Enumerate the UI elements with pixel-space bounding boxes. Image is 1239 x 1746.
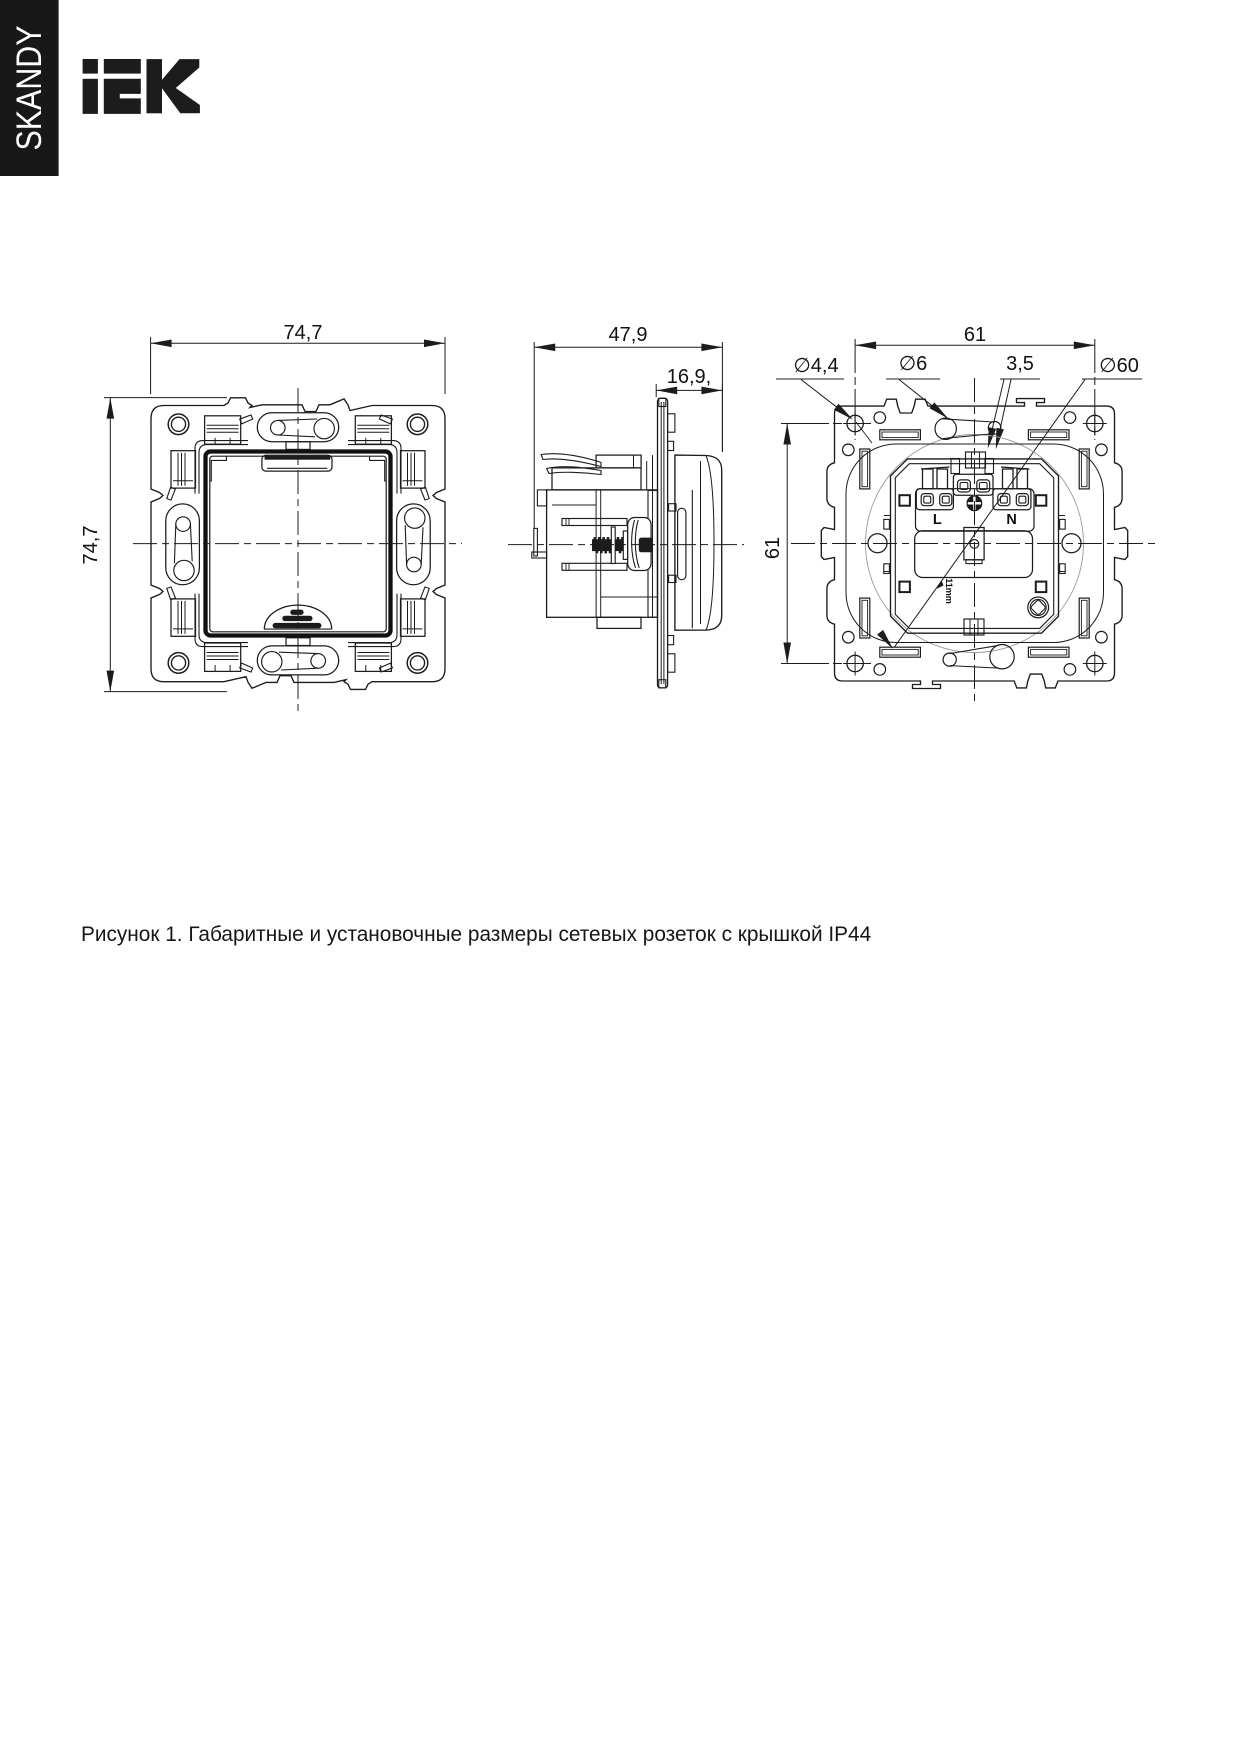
svg-text:L: L [933,512,942,528]
svg-text:∅4,4: ∅4,4 [793,355,838,377]
svg-text:SKANDY: SKANDY [10,26,49,151]
svg-text:74,7: 74,7 [80,526,102,565]
svg-text:N: N [1006,512,1016,528]
svg-text:16,9,: 16,9, [667,366,711,388]
svg-text:∅60: ∅60 [1099,355,1139,377]
svg-text:3,5: 3,5 [1006,353,1034,375]
svg-text:61: 61 [964,324,986,346]
svg-text:11mm: 11mm [944,578,954,604]
svg-text:61: 61 [762,537,784,559]
svg-text:Рисунок 1. Габаритные и устано: Рисунок 1. Габаритные и установочные раз… [81,923,871,946]
svg-text:47,9: 47,9 [609,324,648,346]
svg-text:74,7: 74,7 [284,322,323,344]
svg-text:∅6: ∅6 [899,353,928,375]
